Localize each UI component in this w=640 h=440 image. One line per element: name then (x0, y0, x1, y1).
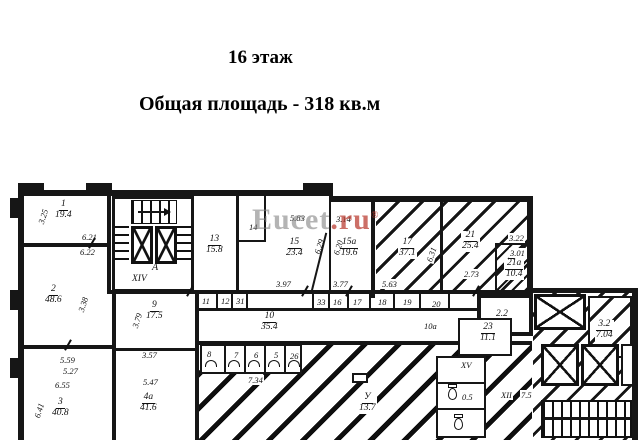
room-area: 23.4 (286, 249, 303, 259)
wall (419, 292, 421, 308)
room-area: 40.8 (52, 409, 69, 419)
elevator-shaft-icon (581, 344, 619, 386)
room-area: 25.4 (462, 242, 479, 252)
dimension: 3.25 (36, 208, 50, 225)
room-label-15: 1523.4 (286, 238, 303, 259)
room-label-23: 2311.1 (480, 323, 496, 344)
watermark-suffix: .ru (330, 203, 371, 236)
room-number-small: 16 (333, 297, 342, 307)
room-number-small: 17 (353, 297, 362, 307)
room-number-small: 2.2 (496, 309, 508, 319)
room-area: 19.4 (55, 211, 72, 221)
dimension: 5.63 (381, 279, 398, 289)
dimension: 5.47 (143, 377, 158, 387)
stair-flight-left (115, 226, 129, 266)
wall (438, 382, 484, 384)
room-label-hall: У13.7 (358, 393, 377, 414)
room-area: 13.7 (359, 404, 376, 414)
dimension: 6.55 (55, 380, 70, 390)
door-arch-icon (228, 360, 240, 367)
room-area: 15.8 (206, 246, 223, 256)
room-area: 37.1 (399, 249, 416, 259)
wall (231, 292, 233, 308)
dimension: 6.21 (82, 232, 97, 242)
wall (438, 408, 484, 410)
room-area: 48.6 (45, 296, 62, 306)
room-area: 35.4 (261, 323, 278, 333)
dimension: 3.57 (142, 350, 157, 360)
dimension: 3.22 (508, 233, 525, 243)
wall-pilaster (303, 183, 333, 190)
dimension: 3.97 (276, 279, 291, 289)
room-number-small: 19 (403, 297, 412, 307)
toilet-tank-icon (448, 384, 457, 388)
room-label-9: 917.5 (146, 301, 163, 322)
watermark: Eucet.ru® (252, 203, 379, 237)
room-number-small: 7 (234, 350, 238, 360)
dimension: 7.34 (247, 375, 264, 385)
door-arch-icon (268, 360, 280, 367)
dimension: 3.77 (333, 279, 348, 289)
room-number-small: 33 (317, 297, 326, 307)
wall-pilaster (10, 290, 18, 310)
stair-landing-line (543, 417, 630, 420)
wall (532, 288, 638, 293)
room-number-small: 6 (254, 350, 258, 360)
column-symbol (352, 373, 368, 383)
room-label-21: 2125.4 (461, 231, 480, 252)
room-label-3: 340.8 (52, 398, 69, 419)
dimension: 3.01 (509, 248, 526, 258)
room-label-17: 1737.1 (398, 238, 417, 259)
room-number-small: 26 (290, 351, 299, 361)
door-arch-icon (288, 360, 300, 367)
room-label-2: 248.6 (45, 285, 62, 306)
room-area: 19.6 (341, 249, 358, 259)
room-label-10: 1035.4 (261, 312, 278, 333)
wall (244, 346, 246, 372)
room-number-small: 8 (207, 349, 211, 359)
room-area: 10.4 (506, 270, 523, 280)
room-number-small: 10а (424, 321, 437, 331)
dimension: 6.22 (80, 247, 95, 257)
room-number-small: 5 (274, 350, 278, 360)
door-arch-icon (248, 360, 260, 367)
stair-flight-right (177, 226, 191, 266)
elevator-shaft-icon (155, 226, 177, 264)
wc-roman-numeral: XV (461, 360, 471, 370)
wall (238, 240, 266, 242)
room-area: 17.5 (146, 312, 163, 322)
toilet-icon (448, 388, 457, 400)
dimension: 6.29 (312, 238, 326, 255)
wall (369, 292, 371, 308)
room-number-small: 18 (378, 297, 387, 307)
watermark-main: Eucet (252, 203, 330, 236)
watermark-reg-icon: ® (371, 210, 379, 221)
wall-pilaster (86, 183, 112, 190)
wall-pilaster (10, 358, 18, 378)
wall (440, 198, 443, 292)
room-label-21a: 21а10.4 (504, 259, 524, 280)
dimension: 3.38 (76, 296, 90, 313)
floor-plan-page: 16 этаж Общая площадь - 318 кв.м Eucet.r… (0, 0, 640, 440)
core-roman-numeral: XIV (132, 274, 147, 284)
room-number-small: 20 (432, 299, 441, 309)
wall (264, 346, 266, 372)
dimension: 2.73 (463, 269, 480, 279)
wall (284, 346, 286, 372)
stair-roman-numeral: XII (500, 390, 513, 400)
wall (312, 292, 314, 308)
toilet-icon (454, 418, 463, 430)
dimension: 5.59 (60, 355, 75, 365)
dimension: 5.27 (63, 366, 78, 376)
room-number-small: 12 (221, 296, 230, 306)
page-title-total-area: Общая площадь - 318 кв.м (139, 93, 380, 116)
wall (216, 292, 218, 308)
wall (18, 190, 24, 440)
elevator-shaft-icon (131, 226, 153, 264)
room-number-small: 31 (236, 296, 245, 306)
wall (18, 243, 110, 247)
wall (448, 292, 450, 308)
wall (393, 292, 395, 308)
room-area: 41.6 (140, 404, 157, 414)
stair-area: 7.5 (520, 390, 533, 400)
elevator-shaft-icon (541, 344, 579, 386)
page-title-floor: 16 этаж (228, 47, 293, 69)
stair-direction-arrow (138, 211, 164, 213)
dimension: 6.41 (32, 402, 46, 419)
toilet-tank-icon (454, 414, 463, 418)
wall (328, 292, 330, 308)
room-label-32: 3.27.04 (595, 320, 614, 341)
wall (330, 196, 533, 202)
wall-pilaster (18, 183, 44, 190)
wall-pilaster (10, 198, 18, 218)
room-label-1: 119.4 (55, 200, 72, 221)
room-label-13: 1315.8 (206, 235, 223, 256)
dimension: 3.79 (130, 312, 144, 329)
wall (195, 292, 199, 440)
core-letter: А (152, 262, 158, 273)
room-area: 11.1 (480, 334, 496, 344)
wall (236, 196, 239, 292)
shaft-box (621, 344, 634, 386)
door-arch-icon (205, 360, 217, 367)
wall (224, 346, 226, 372)
room-area: 7.04 (596, 331, 613, 341)
wall (246, 292, 248, 308)
wc-area: 0.5 (462, 392, 473, 402)
room-label-4a: 4а41.6 (140, 393, 157, 414)
room-number-small: 11 (202, 296, 210, 306)
arrow-head-icon (164, 208, 171, 216)
closet-row (200, 344, 302, 374)
elevator-shaft-icon (534, 294, 586, 330)
